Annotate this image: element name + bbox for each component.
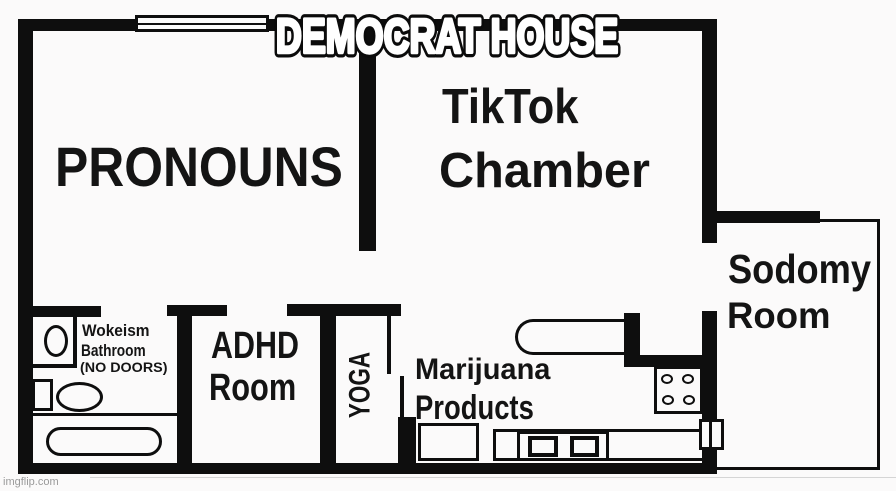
svg-text:DEMOCRAT HOUSE: DEMOCRAT HOUSE	[276, 10, 618, 63]
